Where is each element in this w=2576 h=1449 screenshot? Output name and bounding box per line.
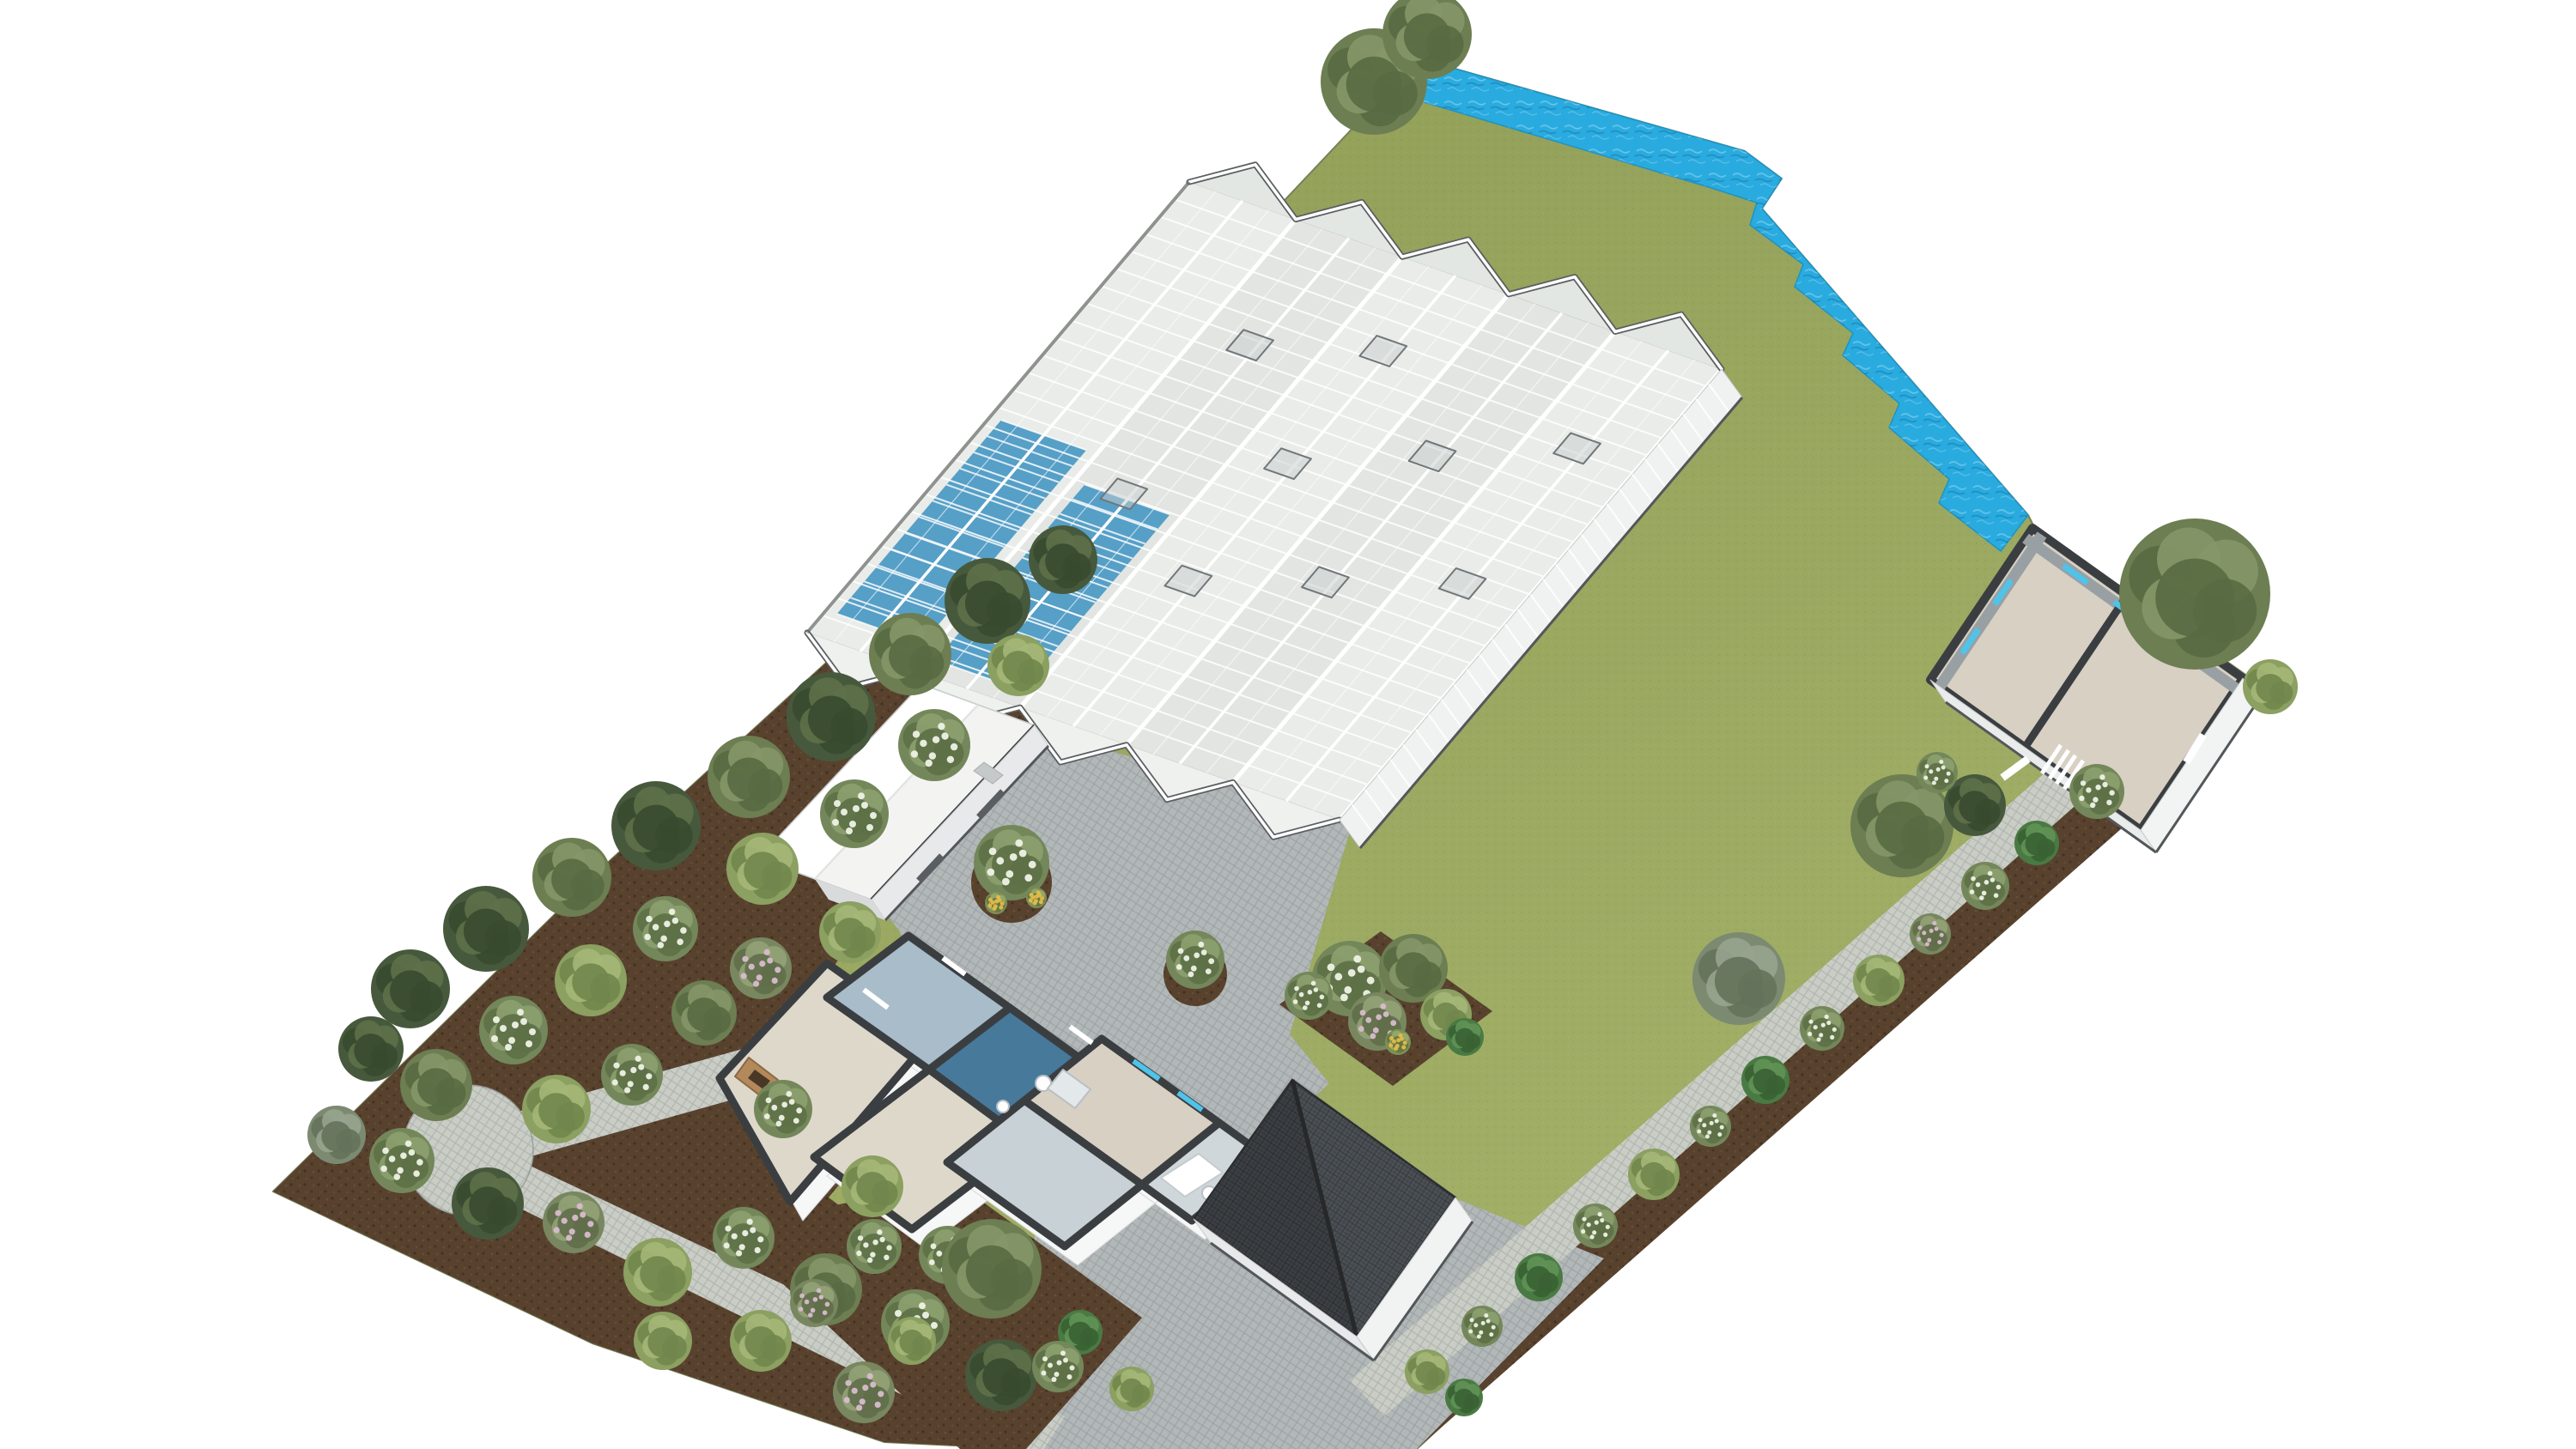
tree [2155,559,2234,638]
sink [997,1100,1009,1113]
flowering-shrub [1932,921,1936,925]
tree [633,805,679,852]
shrub [1640,1162,1667,1189]
flowering-shrub [1468,1330,1473,1334]
site-plan [0,0,2576,1449]
flowering-shrub [996,857,1004,864]
flowers [1392,1040,1396,1044]
tree [687,997,721,1032]
flowering-shrub [1826,1021,1831,1025]
flowering-shrub [1489,1332,1493,1337]
flowering-shrub [853,805,860,812]
shrub [647,1327,677,1357]
flowering-shrub [630,1067,636,1073]
flowering-shrub [1042,1371,1047,1376]
flowering-shrub [1982,891,1987,896]
flowering-shrub [1606,1225,1610,1229]
flowering-shrub [2093,797,2098,802]
flowering-shrub [863,1242,868,1247]
flowering-shrub [628,1081,634,1087]
flowering-shrub [913,731,920,737]
tree [1395,952,1431,988]
flowering-shrub [1370,1034,1376,1040]
flowers [993,904,998,908]
flowering-shrub [1054,1372,1060,1377]
flowering-shrub [1600,1218,1604,1222]
flowering-shrub [1705,1135,1710,1139]
flowering-shrub [1019,850,1027,858]
flowering-shrub [832,819,839,826]
flowering-shrub [638,1064,644,1070]
flowering-shrub [646,1073,652,1079]
flowering-shrub [1587,1222,1591,1227]
flowering-shrub [1029,861,1036,869]
flowering-shrub [1194,953,1200,959]
flowering-shrub [1311,981,1316,986]
tree [469,1186,507,1224]
flowering-shrub [1052,1377,1057,1382]
flowering-shrub [1984,880,1990,885]
flowering-shrub [1917,937,1921,942]
palm [1526,1266,1551,1291]
flowering-shrub [779,1115,785,1121]
flowering-shrub [1005,870,1013,878]
flowering-shrub [1348,969,1356,977]
flowering-shrub [852,1388,858,1394]
tree [982,1358,1020,1396]
flowering-shrub [825,1302,830,1307]
flowering-shrub [1832,1028,1837,1032]
flowering-shrub [1925,943,1929,947]
flowering-shrub [1188,972,1194,978]
flowering-shrub [2102,782,2107,787]
flowering-shrub [2109,790,2114,795]
flowering-shrub [781,1102,787,1108]
flowering-shrub [941,732,948,739]
flowering-shrub [1996,885,2002,890]
flowering-shrub [1940,933,1944,937]
flowering-shrub [529,1028,536,1035]
flowering-shrub [1994,893,1999,898]
shrub [572,963,610,1001]
flowering-shrub [1303,1005,1308,1010]
flowering-shrub [1935,927,1939,931]
flowering-shrub [1473,1323,1478,1327]
flowering-shrub [500,1025,507,1032]
flowering-shrub [1929,929,1934,933]
flowering-shrub [664,921,671,928]
tree [1875,802,1929,855]
flowering-shrub [1383,1011,1389,1017]
flowering-shrub [1308,990,1313,995]
flowering-shrub [669,908,676,915]
flowering-shrub [1183,955,1189,961]
flowering-shrub [989,847,997,855]
flowering-shrub [1825,1015,1829,1019]
flowers [1403,1040,1407,1045]
flowering-shrub [756,974,762,980]
flowering-shrub [793,1118,799,1124]
flowering-shrub [1603,1233,1607,1237]
flowering-shrub [1376,1015,1382,1021]
tree [966,1246,1018,1297]
flowers [1388,1043,1393,1047]
flowering-shrub [817,1288,822,1294]
flowering-shrub [926,760,933,767]
flowering-shrub [1477,1335,1481,1339]
flowering-shrub [2099,774,2105,779]
flowering-shrub [1717,1132,1722,1137]
flowering-shrub [884,1255,889,1260]
shrub [856,1172,888,1203]
flowering-shrub [1293,999,1298,1004]
flowering-shrub [1198,942,1204,948]
flowering-shrub [929,1259,935,1265]
flowering-shrub [819,1294,824,1300]
flowering-shrub [764,1113,770,1119]
flowering-shrub [796,1107,802,1113]
shrub [321,1121,351,1151]
site-plan-svg [0,0,2576,1449]
flowering-shrub [929,752,936,759]
tree [551,858,592,900]
shrub [744,1326,776,1358]
shrub [640,1256,676,1292]
flowering-shrub [643,1084,649,1090]
flowering-shrub [759,961,765,967]
flowering-shrub [491,1035,498,1042]
flowering-shrub [856,1251,861,1256]
flowering-shrub [846,828,853,834]
flowering-shrub [1582,1217,1586,1222]
flowers [1037,894,1042,898]
flowering-shrub [987,869,994,876]
flowering-shrub [757,1236,763,1242]
flowering-shrub [1988,871,1993,876]
flowering-shrub [1941,766,1946,770]
flowering-shrub [1015,840,1023,847]
flowering-shrub [1939,760,1943,764]
flowering-shrub [938,723,945,730]
flowering-shrub [823,1310,828,1315]
flowering-shrub [849,821,856,828]
flowering-shrub [739,1244,745,1250]
palm [1068,1322,1091,1345]
tree [390,970,431,1011]
flowering-shrub [382,1148,389,1155]
flowering-shrub [1595,1221,1599,1225]
flowering-shrub [834,800,841,807]
flowering-shrub [813,1297,818,1302]
flowering-shrub [947,756,954,763]
flowering-shrub [1048,1363,1053,1368]
flowering-shrub [886,1245,891,1250]
flowering-shrub [1927,938,1931,943]
flowering-shrub [1208,958,1214,964]
flowering-shrub [1314,987,1319,992]
flowering-shrub [1598,1212,1602,1216]
flowering-shrub [764,949,770,955]
flowering-shrub [753,980,759,986]
flowers [1000,901,1005,906]
flowering-shrub [587,1221,593,1227]
flowering-shrub [1344,986,1352,994]
flowering-shrub [1305,1001,1310,1006]
flowering-shrub [1042,1356,1048,1361]
flowering-shrub [786,1091,792,1097]
flowering-shrub [1830,1035,1834,1040]
palm [2025,833,2048,856]
flowering-shrub [877,1229,882,1234]
flowering-shrub [1360,1009,1366,1016]
flowering-shrub [1063,1358,1068,1363]
flowering-shrub [747,1219,753,1225]
flowering-shrub [732,1234,738,1240]
flowering-shrub [805,1300,810,1305]
shrub [1002,651,1034,682]
flowering-shrub [1320,995,1325,1000]
flowering-shrub [951,743,957,750]
flowering-shrub [1299,992,1304,997]
flowering-shrub [931,1243,937,1249]
tree [889,634,932,677]
flowering-shrub [867,1258,872,1263]
palm [1455,1028,1475,1048]
flowering-shrub [766,1097,772,1103]
flowering-shrub [922,1312,929,1319]
flowering-shrub [1367,977,1375,985]
flowering-shrub [585,1232,591,1238]
flowering-shrub [862,1385,868,1391]
flowering-shrub [749,964,755,970]
flowering-shrub [1807,1032,1812,1036]
shrub [1120,1379,1143,1402]
flowering-shrub [742,1230,748,1236]
shrub [834,918,866,949]
flowering-shrub [1925,764,1929,768]
flowering-shrub [844,1397,850,1403]
flowering-shrub [400,1153,407,1160]
flowering-shrub [1936,767,1941,772]
flowering-shrub [520,1018,527,1025]
flowering-shrub [1353,955,1361,963]
flowering-shrub [1922,931,1926,935]
flowering-shrub [1817,1037,1821,1041]
flowering-shrub [577,1203,583,1210]
flowering-shrub [1929,769,1933,773]
flowers [1400,1037,1404,1041]
flowering-shrub [1698,1118,1703,1122]
flowering-shrub [808,1313,813,1318]
flowering-shrub [1484,1313,1488,1318]
flowering-shrub [2079,796,2084,801]
flowering-shrub [580,1211,586,1217]
flowering-shrub [413,1170,420,1177]
tree [1404,14,1450,60]
flowering-shrub [1060,1350,1066,1355]
flowering-shrub [1002,878,1010,886]
flowering-shrub [1070,1366,1075,1371]
flowering-shrub [1024,874,1032,882]
flowering-shrub [1294,986,1299,991]
flowering-shrub [569,1228,575,1234]
flowering-shrub [911,750,918,757]
flowering-shrub [508,1037,515,1044]
flowering-shrub [1206,968,1212,974]
tree [354,1034,388,1068]
flowering-shrub [1934,777,1938,781]
flowering-shrub [725,1226,731,1232]
flowering-shrub [1317,1003,1322,1008]
flowering-shrub [1365,1017,1371,1023]
flowering-shrub [811,1308,816,1313]
flowering-shrub [789,1099,795,1105]
flowering-shrub [2081,780,2086,785]
flowering-shrub [1481,1321,1485,1325]
flowering-shrub [860,1398,866,1404]
flowering-shrub [397,1167,404,1174]
flowering-shrub [1970,889,1975,894]
flowering-shrub [867,1373,873,1379]
flowering-shrub [526,1040,532,1047]
flowering-shrub [505,1044,512,1051]
flowering-shrub [841,809,848,815]
shrub [2256,674,2284,702]
flowering-shrub [1176,964,1182,970]
shrub [1865,968,1892,995]
flowering-shrub [405,1140,412,1147]
flowering-shrub [1581,1229,1585,1234]
flowering-shrub [1470,1318,1474,1322]
flowering-shrub [1057,1361,1062,1366]
flowering-shrub [1697,1130,1701,1134]
flowering-shrub [1010,853,1018,861]
flowering-shrub [555,1210,561,1216]
flowering-shrub [613,1063,619,1069]
flowering-shrub [1808,1020,1813,1024]
flowering-shrub [1979,895,1984,900]
flowering-shrub [1479,1331,1483,1335]
flowering-shrub [750,1227,756,1233]
flowering-shrub [653,924,659,931]
flowers [999,906,1003,910]
flowering-shrub [380,1166,387,1173]
flowering-shrub [878,1391,884,1397]
flowering-shrub [775,967,781,973]
flowering-shrub [554,1227,560,1233]
flowering-shrub [799,1294,805,1299]
flowering-shrub [1990,877,1996,882]
flowering-shrub [872,1240,878,1245]
flowering-shrub [624,1087,630,1093]
flowering-shrub [767,957,773,963]
flowering-shrub [1720,1125,1724,1130]
flowering-shrub [1358,966,1365,973]
flowering-shrub [858,1235,863,1240]
flowering-shrub [2106,800,2111,805]
flowers [991,900,995,905]
flowering-shrub [1590,1234,1595,1239]
flowering-shrub [620,1070,626,1076]
flowering-shrub [856,1404,862,1410]
flowering-shrub [493,1016,500,1023]
flowering-shrub [933,737,939,743]
flowering-shrub [1918,925,1923,930]
flowering-shrub [1380,1003,1386,1009]
flowering-shrub [1814,1025,1818,1029]
flowering-shrub [875,1402,881,1408]
flowering-shrub [870,1381,876,1387]
flowering-shrub [1592,1230,1596,1234]
shrub [538,1093,574,1129]
flowering-shrub [1702,1123,1706,1127]
tree [1346,57,1401,112]
flowering-shrub [660,936,667,943]
flowering-shrub [1821,1023,1826,1028]
flowering-shrub [736,1250,742,1256]
flowering-shrub [1707,1131,1711,1135]
flowering-shrub [646,916,653,923]
flowering-shrub [672,918,679,925]
flowering-shrub [1976,882,1981,888]
flowering-shrub [1178,948,1184,954]
flowers [997,898,1001,902]
flowers [1395,1044,1400,1048]
palm [1455,1389,1474,1409]
tree [1045,543,1081,579]
tree [727,757,770,800]
flowering-shrub [389,1155,396,1162]
flowering-shrub [680,927,687,934]
flowering-shrub [879,1237,884,1242]
flowering-shrub [858,792,865,799]
tree [1715,957,1763,1005]
tree [464,909,508,954]
flowering-shrub [1486,1319,1491,1324]
shrub [1415,1361,1438,1385]
tree [417,1068,455,1106]
flowering-shrub [512,1022,519,1028]
flowering-shrub [1971,876,1976,882]
flowers [1039,900,1043,904]
flowering-shrub [566,1234,572,1240]
flowering-shrub [572,1215,578,1221]
flowering-shrub [771,1105,777,1111]
flowering-shrub [1191,966,1197,972]
flowering-shrub [612,1079,618,1085]
shrub [899,1330,924,1355]
flowering-shrub [741,973,747,979]
flowering-shrub [772,978,778,984]
tree [965,581,1010,626]
flowering-shrub [919,1302,926,1309]
flowering-shrub [799,1307,804,1312]
flowering-shrub [658,942,665,949]
flowering-shrub [895,1310,902,1317]
flowering-shrub [920,740,927,747]
flowering-shrub [936,1251,942,1257]
flowering-shrub [1492,1325,1496,1330]
flowering-shrub [870,1252,875,1257]
flowering-shrub [1327,963,1335,971]
flowering-shrub [1923,776,1928,780]
flowering-shrub [635,1056,641,1062]
tree [808,696,854,743]
flowering-shrub [1390,1020,1396,1026]
flowering-shrub [2090,803,2095,808]
flowering-shrub [1712,1113,1716,1118]
flowers [1031,895,1036,900]
